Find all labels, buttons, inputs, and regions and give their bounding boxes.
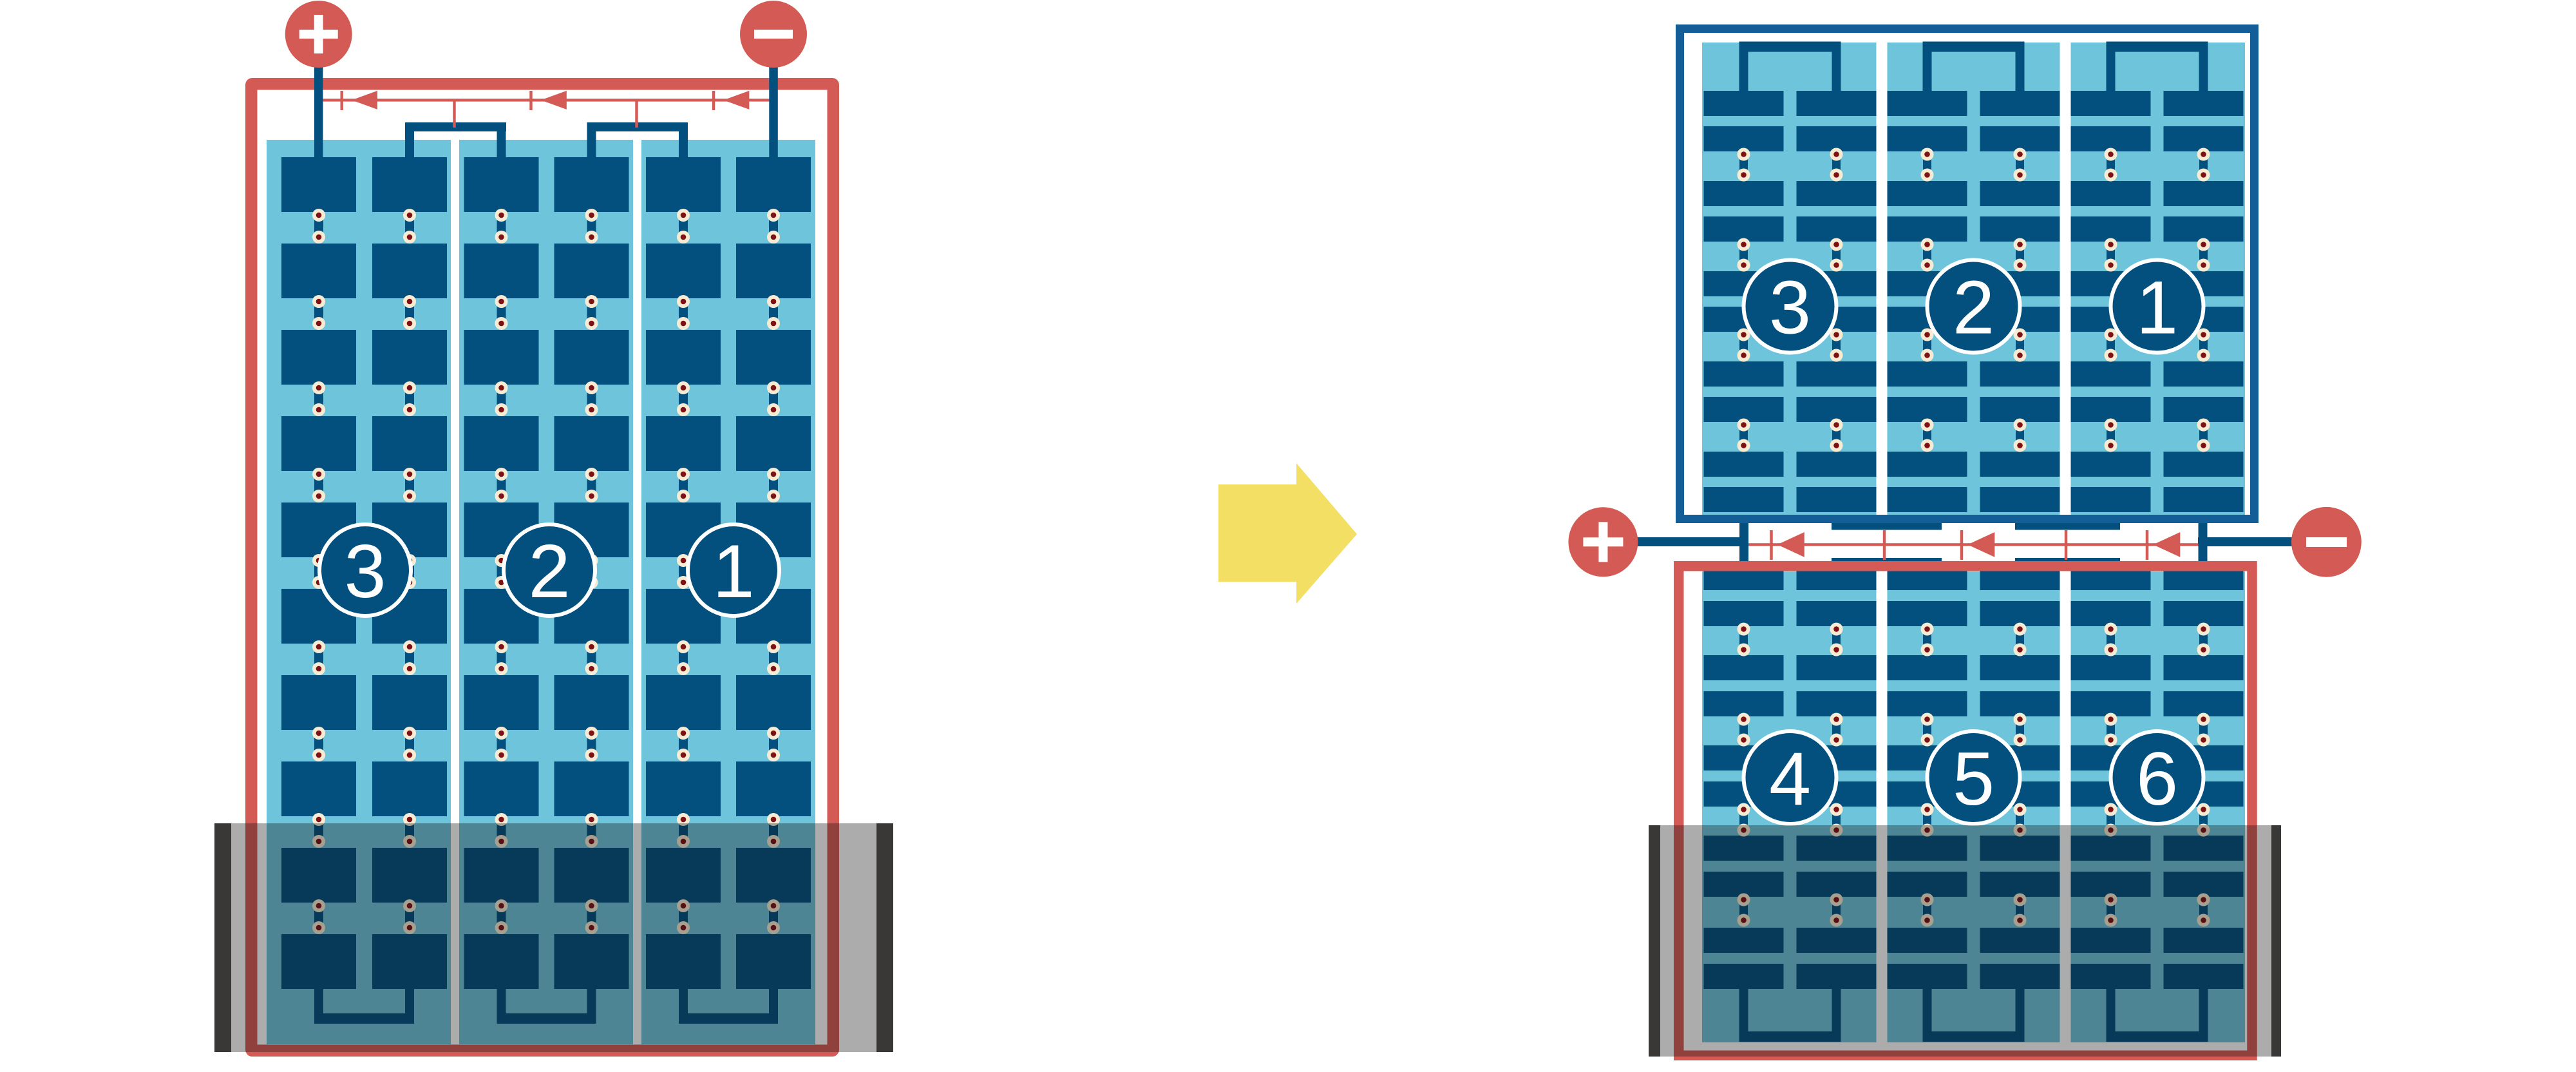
svg-text:4: 4	[1769, 736, 1811, 821]
svg-text:3: 3	[1769, 265, 1811, 350]
svg-text:1: 1	[712, 529, 754, 613]
svg-text:5: 5	[1953, 736, 1994, 821]
svg-text:2: 2	[1953, 265, 1994, 350]
svg-text:3: 3	[344, 529, 386, 613]
svg-text:6: 6	[2136, 736, 2178, 821]
svg-text:1: 1	[2136, 265, 2178, 350]
svg-text:2: 2	[528, 529, 570, 613]
